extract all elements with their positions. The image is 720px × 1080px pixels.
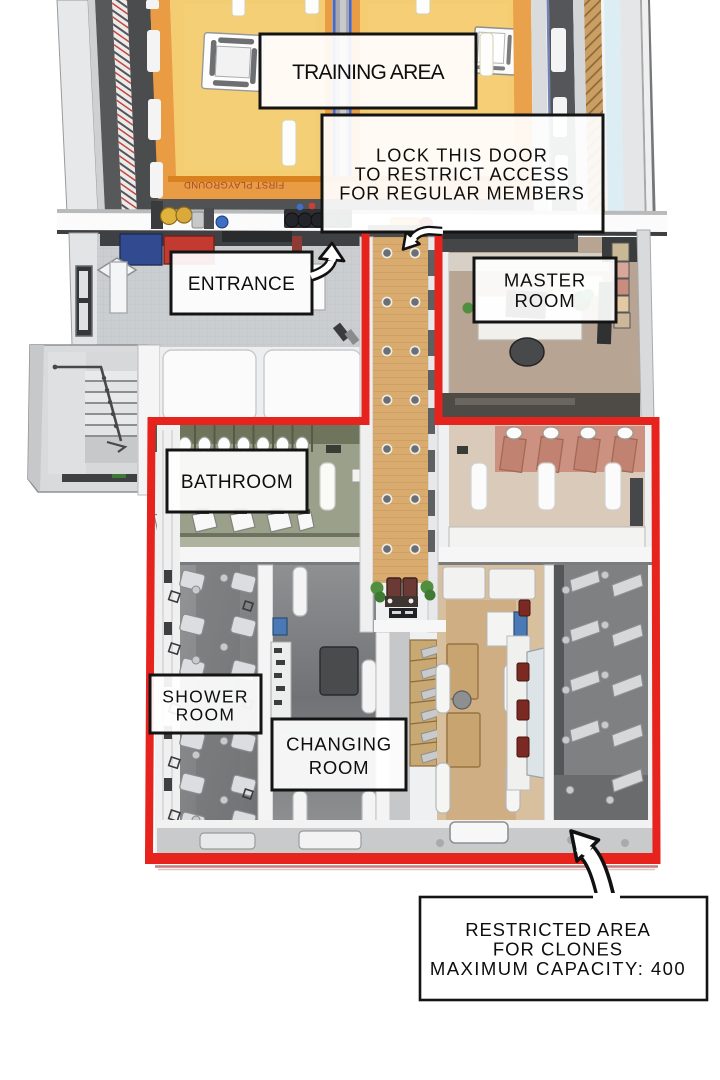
svg-text:BATHROOM: BATHROOM — [181, 472, 293, 493]
svg-text:TRAINING AREA: TRAINING AREA — [292, 61, 445, 84]
svg-text:ROOM: ROOM — [309, 757, 370, 778]
svg-text:ENTRANCE: ENTRANCE — [188, 274, 295, 295]
svg-text:LOCK THIS DOOR: LOCK THIS DOOR — [376, 146, 548, 166]
svg-text:CHANGING: CHANGING — [286, 734, 392, 755]
svg-text:RESTRICTED AREA: RESTRICTED AREA — [465, 919, 650, 940]
svg-text:FIRST PLAYGROUND: FIRST PLAYGROUND — [184, 179, 285, 190]
svg-text:FOR REGULAR MEMBERS: FOR REGULAR MEMBERS — [339, 184, 584, 204]
svg-text:MAXIMUM CAPACITY: 400: MAXIMUM CAPACITY: 400 — [430, 958, 686, 979]
svg-text:TO RESTRICT ACCESS: TO RESTRICT ACCESS — [355, 165, 570, 185]
svg-text:FOR CLONES: FOR CLONES — [493, 939, 623, 960]
svg-text:MASTER: MASTER — [504, 270, 586, 291]
svg-text:ROOM: ROOM — [515, 290, 576, 311]
svg-text:ROOM: ROOM — [176, 705, 236, 725]
svg-text:SHOWER: SHOWER — [162, 687, 249, 707]
